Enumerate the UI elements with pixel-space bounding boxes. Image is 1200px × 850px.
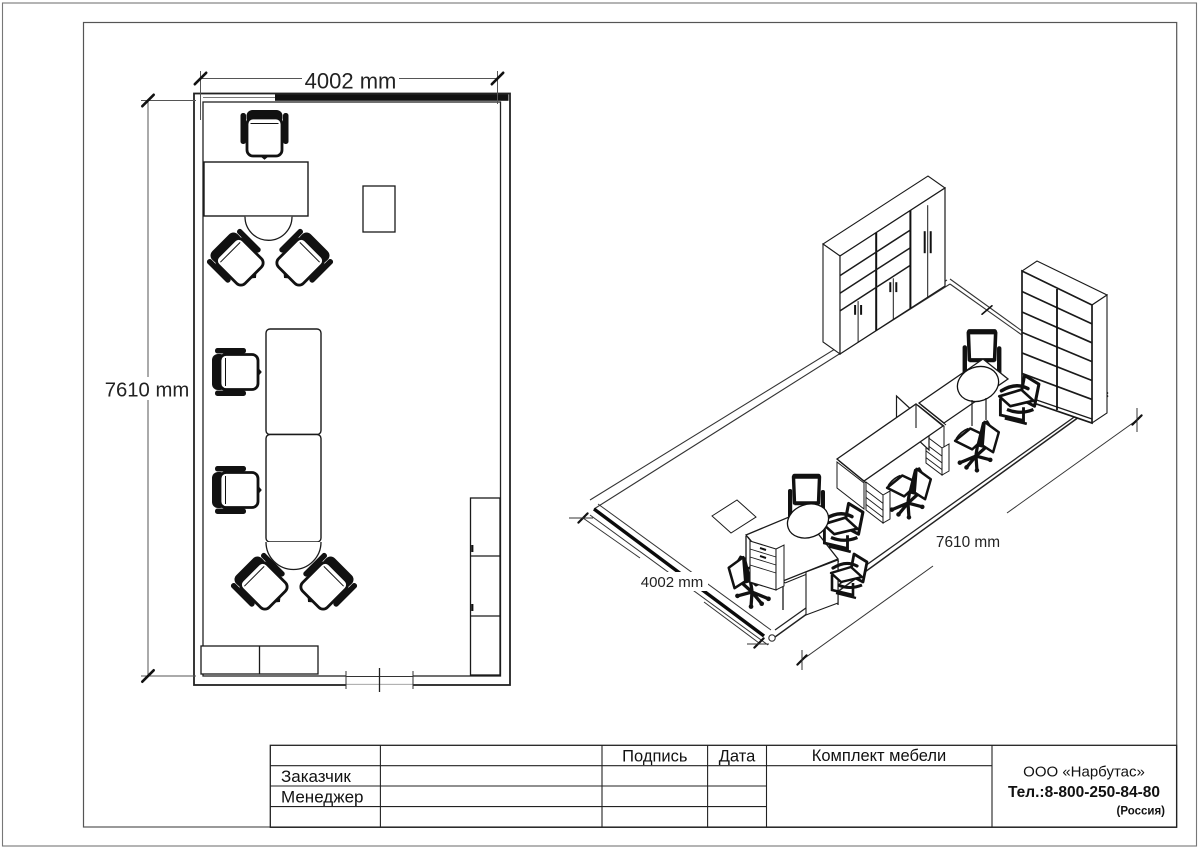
- svg-text:Менеджер: Менеджер: [281, 788, 363, 807]
- svg-text:Комплект мебели: Комплект мебели: [812, 747, 947, 765]
- svg-text:Дата: Дата: [719, 748, 756, 766]
- svg-text:Заказчик: Заказчик: [281, 767, 351, 786]
- svg-text:ООО «Нарбутас»: ООО «Нарбутас»: [1023, 764, 1145, 781]
- svg-text:7610 mm: 7610 mm: [936, 534, 1000, 551]
- svg-text:Подпись: Подпись: [622, 748, 687, 766]
- svg-text:7610 mm: 7610 mm: [105, 380, 190, 402]
- svg-text:Тел.:8-800-250-84-80: Тел.:8-800-250-84-80: [1008, 784, 1160, 801]
- svg-text:(Россия): (Россия): [1117, 806, 1166, 818]
- svg-text:4002 mm: 4002 mm: [641, 574, 704, 591]
- svg-text:4002 mm: 4002 mm: [305, 69, 397, 94]
